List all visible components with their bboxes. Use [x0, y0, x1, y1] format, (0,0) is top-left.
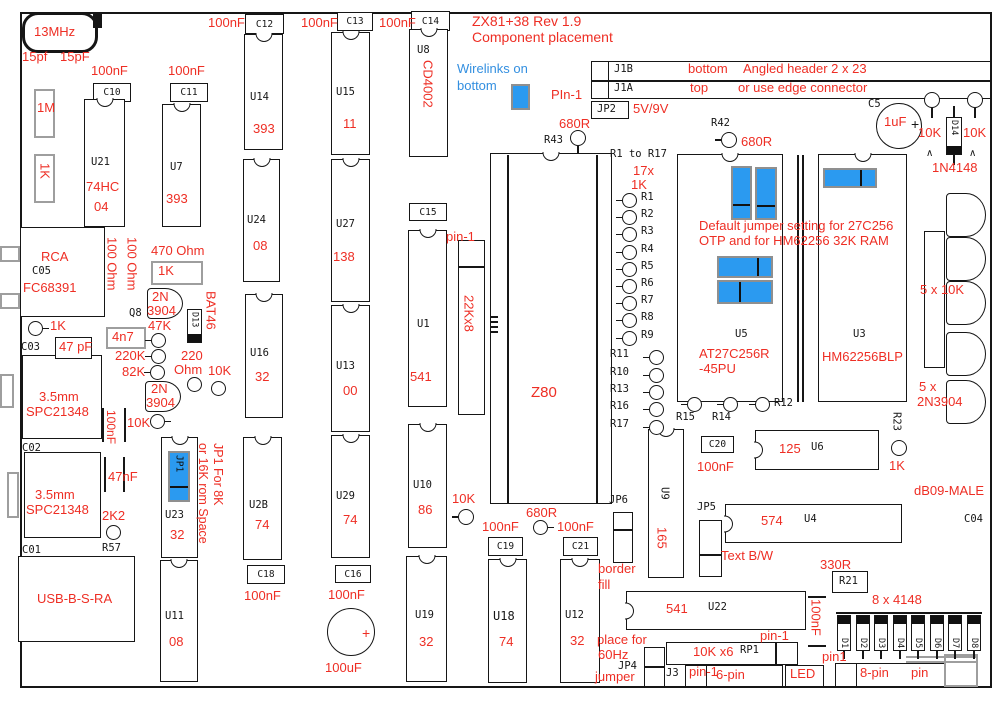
- diode-band: [857, 616, 869, 624]
- cap-label: C10: [103, 87, 120, 98]
- label-6pin-pin1: pin-1: [689, 665, 718, 678]
- label-jack1-1: 3.5mm: [39, 390, 79, 403]
- label-bat46: BAT46: [204, 291, 217, 330]
- chip-notch: [255, 33, 272, 42]
- label-1k-left: 1K: [38, 163, 51, 179]
- board-edge-right: [990, 12, 992, 688]
- label-rp1: RP1: [740, 645, 759, 656]
- diode-label: D3: [876, 638, 886, 648]
- note-60hz-3: jumper: [595, 670, 635, 683]
- label-u10-value: 86: [418, 503, 432, 516]
- label-u15-value: 11: [343, 117, 357, 130]
- chip-u12: [560, 559, 600, 683]
- jumper-u5-h2: [717, 280, 773, 304]
- cap-label: C13: [346, 16, 363, 27]
- lead-dash: [749, 404, 755, 406]
- label-r16: R16: [610, 401, 629, 412]
- chip-notch: [171, 436, 188, 445]
- label-jp2-value: 5V/9V: [633, 102, 668, 115]
- label-u24: U24: [247, 215, 266, 226]
- socket-22kx8-div: [459, 266, 484, 268]
- pad-1k-rca: [28, 321, 43, 336]
- transistor-right-1: [946, 193, 986, 237]
- label-100uf-plus: +: [362, 626, 370, 640]
- label-u2b-value: 74: [255, 518, 269, 531]
- lead-dash: [643, 427, 649, 429]
- label-15pf-1: 15pf: [22, 50, 47, 63]
- lead-dash: [165, 421, 171, 423]
- label-r17: R17: [610, 419, 629, 430]
- pad-r43: [570, 130, 586, 146]
- pin-tick: [490, 326, 498, 328]
- label-u7: U7: [170, 162, 183, 173]
- cap-label: C16: [344, 569, 361, 580]
- u3-strip-a: [797, 155, 799, 402]
- label-2k2: 2K2: [102, 509, 125, 522]
- label-c13-value: 100nF: [301, 16, 338, 29]
- label-u23: U23: [165, 510, 184, 521]
- lead-dash: [616, 217, 622, 219]
- diode-d8: D8: [967, 615, 981, 651]
- pad-10k-top1-stem: [931, 108, 933, 118]
- label-u4: U4: [804, 514, 817, 525]
- label-j1a: J1A: [614, 83, 633, 94]
- label-jack1-2: SPC21348: [26, 405, 89, 418]
- label-u5-value1: AT27C256R: [699, 347, 770, 360]
- label-jack2-2: SPC21348: [26, 503, 89, 516]
- diode-band: [949, 616, 961, 624]
- label-u29: U29: [336, 491, 355, 502]
- jack2-tab: [7, 472, 19, 518]
- cap-c12: C12: [245, 14, 284, 34]
- pad-r23: [891, 440, 907, 456]
- label-textbw: Text B/W: [721, 549, 773, 562]
- lead-dash: [643, 375, 649, 377]
- label-u16-value: 32: [255, 370, 269, 383]
- label-fc68391: FC68391: [23, 281, 76, 294]
- d-stem: [899, 651, 901, 659]
- r43-stem: [577, 146, 579, 154]
- d-stem: [862, 651, 864, 659]
- jumper-u3-h: [823, 168, 877, 188]
- chip-notch: [724, 515, 733, 532]
- label-680r-b: 680R: [526, 506, 557, 519]
- note-header-1: Angled header 2 x 23: [743, 62, 867, 75]
- diode-band: [912, 616, 924, 624]
- pad-220ohm: [187, 377, 202, 392]
- diode-label: D4: [895, 638, 905, 648]
- jumper-u5-h1: [717, 256, 773, 278]
- chip-notch: [854, 153, 871, 162]
- label-1n4148: 1N4148: [932, 161, 978, 174]
- diode-label: D2: [858, 638, 868, 648]
- cap-c13: C13: [337, 12, 373, 31]
- chip-notch: [572, 558, 589, 567]
- label-1k-rca: 1K: [50, 319, 66, 332]
- label-c20-value: 100nF: [697, 460, 734, 473]
- label-r10: R10: [610, 367, 629, 378]
- jp4-box-top: [644, 647, 665, 667]
- label-c10-value: 100nF: [91, 64, 128, 77]
- cap-c18: C18: [247, 565, 285, 584]
- cap-c20: C20: [701, 436, 734, 453]
- label-db09: dB09-MALE: [914, 484, 984, 497]
- lead-dash: [643, 392, 649, 394]
- diode-label: D14: [949, 120, 959, 135]
- label-100ohm-2: 100 Ohm: [125, 237, 138, 290]
- rca-tab-bottom: [0, 293, 20, 309]
- diode-label: D7: [950, 638, 960, 648]
- chip-u9: [648, 429, 684, 578]
- jumper-divider: [757, 258, 759, 276]
- gray-line-2: [906, 661, 978, 663]
- label-10k-top1: 10K: [918, 126, 941, 139]
- pad-r17: [649, 420, 664, 435]
- j1-endcap-bottom: [591, 81, 609, 99]
- rp1-pin1-box: [776, 642, 798, 665]
- lead-dash: [616, 269, 622, 271]
- label-q2-3904: 3904: [146, 396, 175, 409]
- chip-notch: [96, 98, 113, 107]
- cap-label: C18: [257, 569, 274, 580]
- label-17x: 17x: [633, 164, 654, 177]
- label-u11: U11: [165, 611, 184, 622]
- diode-label: D5: [913, 638, 923, 648]
- pad-220k: [151, 349, 166, 364]
- label-c03: C03: [21, 342, 40, 353]
- cap-c11: C11: [170, 83, 208, 102]
- jumper-jp1: JP1: [168, 451, 190, 502]
- cap-label: C21: [572, 541, 589, 552]
- label-j1b-bottom: bottom: [688, 62, 728, 75]
- label-c18-value: 100nF: [244, 589, 281, 602]
- label-u1-value: 541: [410, 370, 432, 383]
- label-borderfill-1: border: [598, 562, 636, 575]
- label-u27: U27: [336, 219, 355, 230]
- pad-r7: [622, 296, 637, 311]
- diode-d1: D1: [837, 615, 851, 651]
- pad-r16: [649, 402, 664, 417]
- title-line2: Component placement: [472, 30, 613, 44]
- chip-notch: [254, 436, 271, 445]
- label-r1: R1: [641, 192, 654, 203]
- conn-8pin-pin1: [835, 663, 857, 687]
- label-470ohm: 470 Ohm: [151, 244, 204, 257]
- label-5x-1: 5 x: [919, 380, 936, 393]
- caret-1: ∧: [926, 149, 933, 159]
- diode-label: D6: [932, 638, 942, 648]
- label-17x-1k: 1K: [631, 178, 647, 191]
- label-u7-value: 393: [166, 192, 188, 205]
- label-q8-2n: 2N: [152, 290, 169, 303]
- chip-notch: [418, 555, 435, 564]
- pad-r42: [721, 132, 737, 148]
- pad-r14: [723, 397, 738, 412]
- label-u27-value: 138: [333, 250, 355, 263]
- diode-d6: D6: [930, 615, 944, 651]
- cap-label: C14: [422, 16, 439, 27]
- pad-r12: [755, 397, 770, 412]
- note-60hz-1: place for: [597, 633, 647, 646]
- label-q2-2n: 2N: [151, 382, 168, 395]
- label-u18: U18: [493, 610, 515, 622]
- label-rca: RCA: [41, 250, 68, 263]
- label-100nf-v2: 100nF: [809, 599, 822, 636]
- lead-dash: [715, 139, 721, 141]
- label-r7: R7: [641, 295, 654, 306]
- note-jumper-1: Default jumper setting for 27C256: [699, 219, 893, 232]
- label-j1b: J1B: [614, 64, 633, 75]
- label-j3: J3: [666, 668, 679, 679]
- label-c04: C04: [964, 514, 983, 525]
- lead-dash: [548, 527, 554, 529]
- diode-band: [188, 334, 201, 342]
- pin-tick: [490, 331, 498, 333]
- label-u21: U21: [91, 157, 110, 168]
- label-5x10k: 5 x 10K: [920, 283, 964, 296]
- lead-dash: [616, 338, 622, 340]
- chip-notch: [754, 442, 763, 459]
- wirelink-swatch: [511, 84, 530, 110]
- diode-d13: D13: [187, 309, 202, 343]
- jumper-divider: [739, 282, 741, 302]
- lead-dash: [452, 516, 458, 518]
- lead-dash: [616, 252, 622, 254]
- label-u12: U12: [565, 610, 584, 621]
- label-330r: 330R: [820, 558, 851, 571]
- label-8pin-overlap: pin: [911, 666, 928, 679]
- note-header-2: or use edge connector: [738, 81, 867, 94]
- label-u12-value: 32: [570, 634, 584, 647]
- jumper-u5-v2: [755, 167, 777, 220]
- pad-r15: [687, 397, 702, 412]
- diode-label: D13: [190, 312, 200, 327]
- transistor-right-4: [946, 332, 986, 376]
- pad-10k-u10: [458, 509, 474, 525]
- label-6pin: 6-pin: [716, 668, 745, 681]
- lead-dash: [43, 328, 49, 330]
- jack1-tab: [0, 374, 14, 408]
- label-c14-value: 100nF: [379, 16, 416, 29]
- pad-82k: [150, 365, 165, 380]
- diode-rail: [836, 612, 982, 614]
- jp6-box-bottom: [613, 530, 633, 563]
- chip-notch: [420, 28, 437, 37]
- label-u15: U15: [336, 87, 355, 98]
- pad-r9: [622, 331, 637, 346]
- label-u6: U6: [811, 442, 824, 453]
- label-100ohm-1: 100 Ohm: [105, 237, 118, 290]
- diode-d3: D3: [874, 615, 888, 651]
- j1-endcap-top: [591, 61, 609, 81]
- transistor-right-2: [946, 237, 986, 281]
- label-r12: R12: [774, 398, 793, 409]
- label-z80: Z80: [531, 385, 557, 400]
- jumper-divider: [733, 204, 750, 206]
- label-5x-2: 2N3904: [917, 395, 963, 408]
- diode-d2: D2: [856, 615, 870, 651]
- label-r57: R57: [102, 543, 121, 554]
- chip-notch: [256, 293, 273, 302]
- label-c19-value: 100nF: [482, 520, 519, 533]
- pad-r57: [106, 525, 121, 540]
- cap-label: C11: [180, 87, 197, 98]
- label-u14-value: 393: [253, 122, 275, 135]
- label-u23-value: 32: [170, 528, 184, 541]
- label-u10: U10: [413, 480, 432, 491]
- diode-band: [947, 146, 961, 154]
- label-r43-value: 680R: [559, 117, 590, 130]
- jp6-box-top: [613, 512, 633, 530]
- label-usb: USB-B-S-RA: [37, 592, 112, 605]
- label-r1-r17: R1 to R17: [610, 149, 667, 160]
- label-47k: 47K: [148, 319, 171, 332]
- lead-dash: [616, 320, 622, 322]
- label-u13-value: 00: [343, 384, 357, 397]
- label-u9-value: 165: [655, 527, 668, 549]
- label-r4: R4: [641, 244, 654, 255]
- cap-label: C19: [497, 541, 514, 552]
- chip-notch: [543, 152, 560, 161]
- cap-c15: C15: [409, 203, 447, 221]
- label-8pin: 8-pin: [860, 666, 889, 679]
- pad-r2: [622, 210, 637, 225]
- label-jp6: JP6: [609, 495, 628, 506]
- label-c5: C5: [868, 99, 881, 110]
- label-r21: R21: [839, 576, 858, 587]
- label-u21-value2: 04: [94, 200, 108, 213]
- jp4-box-bottom: [644, 667, 665, 687]
- chip-notch: [342, 304, 359, 313]
- pad-10k-top2-stem: [974, 108, 976, 118]
- note-wirelinks-1: Wirelinks on: [457, 62, 528, 75]
- label-u13: U13: [336, 361, 355, 372]
- label-47nf: 47nF: [108, 470, 138, 483]
- label-q8-3904: 3904: [147, 304, 176, 317]
- label-u11-value: 08: [169, 635, 183, 648]
- caret-2: ∧: [969, 149, 976, 159]
- chip-notch: [171, 559, 188, 568]
- pin-tick: [490, 316, 498, 318]
- label-u1: U1: [417, 319, 430, 330]
- chip-u3: [818, 154, 907, 402]
- label-r5: R5: [641, 261, 654, 272]
- chip-notch: [342, 158, 359, 167]
- note-jp1-1: JP1 For 8K: [211, 443, 224, 506]
- z80-pin-row-right: [596, 155, 598, 503]
- diode-label: D1: [839, 638, 849, 648]
- diode-d14: D14: [946, 117, 962, 155]
- cap-c21: C21: [563, 537, 598, 556]
- label-c5-value: 1uF: [884, 115, 906, 128]
- sil-pack-5x10k: [924, 231, 945, 368]
- diode-d4: D4: [893, 615, 907, 651]
- label-u9: U9: [659, 487, 670, 500]
- lead-dash: [616, 200, 622, 202]
- cap-100nf-br-bottom: [808, 645, 826, 647]
- chip-notch: [173, 103, 190, 112]
- cap-47nf-line1: [104, 457, 106, 492]
- chip-notch: [722, 153, 739, 162]
- label-rp1-value: 10K x6: [693, 645, 733, 658]
- rca-tab-top: [0, 246, 20, 262]
- cap-100nf-br-top: [808, 596, 826, 598]
- label-r42: R42: [711, 118, 730, 129]
- d-stem: [954, 651, 956, 659]
- label-100uf: 100uF: [325, 661, 362, 674]
- cap-label: C20: [709, 439, 726, 450]
- label-c21-value: 100nF: [557, 520, 594, 533]
- label-u18-value: 74: [499, 635, 513, 648]
- label-4n7: 4n7: [112, 330, 134, 343]
- label-u14: U14: [250, 92, 269, 103]
- diode-band: [968, 616, 980, 624]
- label-c02: C02: [22, 443, 41, 454]
- label-15pf-2: 15pF: [60, 50, 90, 63]
- label-u8: U8: [417, 45, 430, 56]
- label-u22-value: 541: [666, 602, 688, 615]
- label-1m: 1M: [37, 101, 55, 114]
- label-r23-value: 1K: [889, 459, 905, 472]
- label-u6-value: 125: [779, 442, 801, 455]
- pad-r10: [649, 368, 664, 383]
- label-8pin-pin1: pin1: [822, 650, 847, 663]
- label-c11-value: 100nF: [168, 64, 205, 77]
- label-c05: C05: [32, 266, 51, 277]
- pad-r5: [622, 262, 637, 277]
- d-stem: [880, 651, 882, 659]
- d-stem: [917, 651, 919, 659]
- label-jack2-1: 3.5mm: [35, 488, 75, 501]
- lead-dash: [616, 286, 622, 288]
- cap-label: C12: [256, 19, 273, 30]
- label-10k-u10: 10K: [452, 492, 475, 505]
- lead-dash: [145, 340, 151, 342]
- label-j1a-top: top: [690, 81, 708, 94]
- label-220k: 220K: [115, 349, 145, 362]
- cap-100nf-v-line2: [124, 408, 126, 442]
- note-jumper-2: OTP and for HM62256 32K RAM: [699, 234, 889, 247]
- label-u3: U3: [853, 329, 866, 340]
- chip-notch: [342, 434, 359, 443]
- note-jp1-2: or 16K rom Space: [196, 443, 209, 544]
- label-10k-b: 10K: [127, 416, 150, 429]
- label-r42-value: 680R: [741, 135, 772, 148]
- diode-band: [931, 616, 943, 624]
- label-u5-value2: -45PU: [699, 362, 736, 375]
- label-u3-value: HM62256BLP: [822, 350, 903, 363]
- label-rp1-pin1: pin-1: [760, 629, 789, 642]
- lead-dash: [643, 409, 649, 411]
- label-10k-top2: 10K: [963, 126, 986, 139]
- label-socket-pin1: pin-1: [446, 230, 475, 243]
- chip-notch: [499, 558, 516, 567]
- pad-680r: [533, 520, 548, 535]
- label-u16: U16: [250, 348, 269, 359]
- label-13mhz: 13MHz: [34, 25, 75, 38]
- chip-notch: [342, 31, 359, 40]
- label-r6: R6: [641, 278, 654, 289]
- chip-notch: [419, 423, 436, 432]
- pad-r3: [622, 227, 637, 242]
- lead-dash: [616, 303, 622, 305]
- label-u4-value: 574: [761, 514, 783, 527]
- label-220ohm-1: 220: [181, 349, 203, 362]
- u3-strip-b: [802, 155, 804, 402]
- d-stem: [936, 651, 938, 659]
- title-line1: ZX81+38 Rev 1.9: [472, 14, 581, 28]
- label-u29-value: 74: [343, 513, 357, 526]
